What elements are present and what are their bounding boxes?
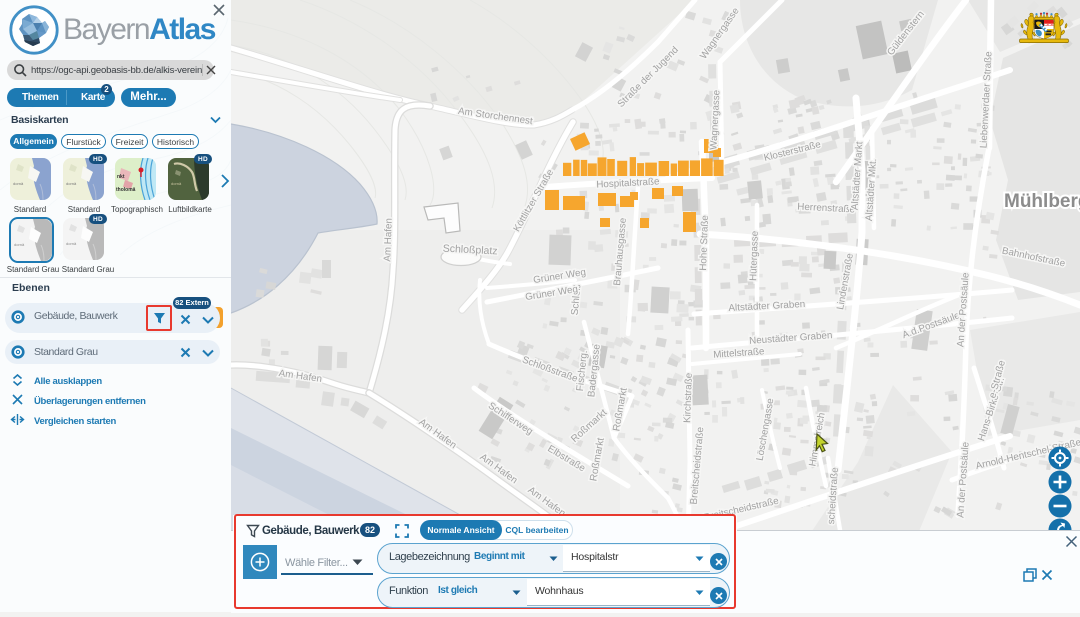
svg-text:Am Hafen: Am Hafen — [382, 218, 395, 262]
svg-text:dornä: dornä — [14, 242, 25, 247]
svg-text:Mühlberg: Mühlberg — [1004, 191, 1080, 212]
svg-text:dornä: dornä — [66, 181, 77, 186]
svg-text:dornä: dornä — [171, 181, 182, 186]
svg-text:Kirchstraße: Kirchstraße — [682, 372, 695, 423]
svg-text:nkt: nkt — [117, 174, 125, 180]
svg-text:dornä: dornä — [66, 241, 77, 246]
svg-text:dornä: dornä — [13, 181, 24, 186]
svg-text:Hütergasse: Hütergasse — [748, 230, 761, 281]
svg-text:tholomä: tholomä — [116, 187, 136, 193]
svg-text:Hohe Straße: Hohe Straße — [698, 214, 711, 270]
